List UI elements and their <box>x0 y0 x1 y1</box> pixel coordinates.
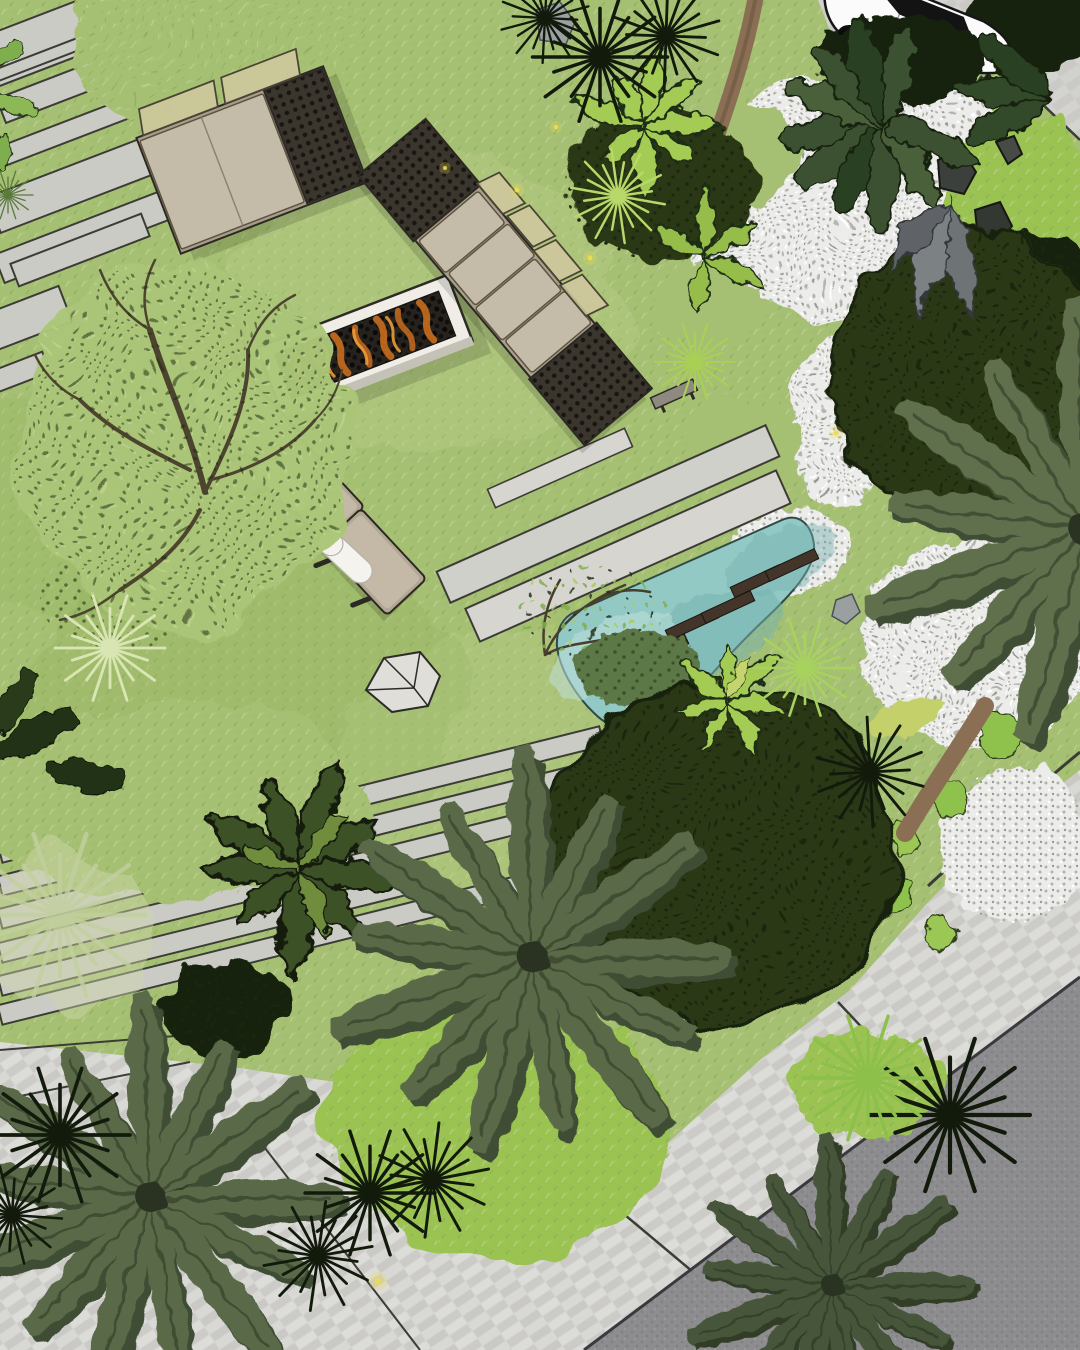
landscape-render <box>0 0 1080 1350</box>
firefly <box>510 183 524 197</box>
firefly <box>439 162 451 174</box>
firefly <box>829 426 843 440</box>
leaf <box>925 918 955 948</box>
firefly <box>369 1272 387 1290</box>
scene-canvas <box>0 0 1080 1350</box>
firefly <box>550 121 562 133</box>
shade-tree <box>15 260 355 630</box>
canopy-speckles <box>20 265 350 625</box>
firefly <box>583 251 597 265</box>
